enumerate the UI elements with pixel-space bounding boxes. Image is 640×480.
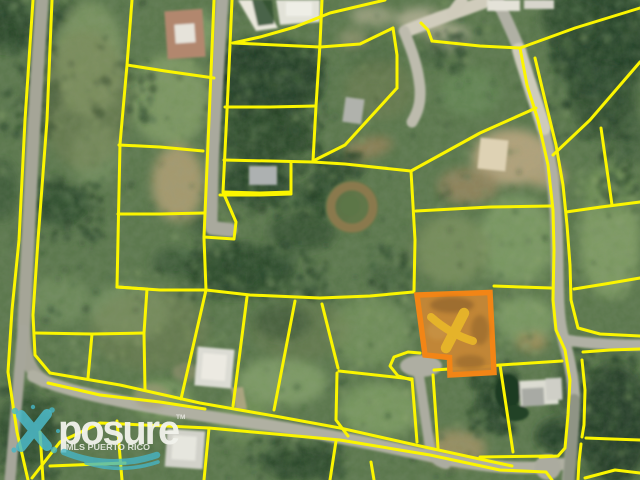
svg-text:MLS PUERTO RICO: MLS PUERTO RICO <box>66 442 151 452</box>
svg-text:TM: TM <box>176 414 185 421</box>
